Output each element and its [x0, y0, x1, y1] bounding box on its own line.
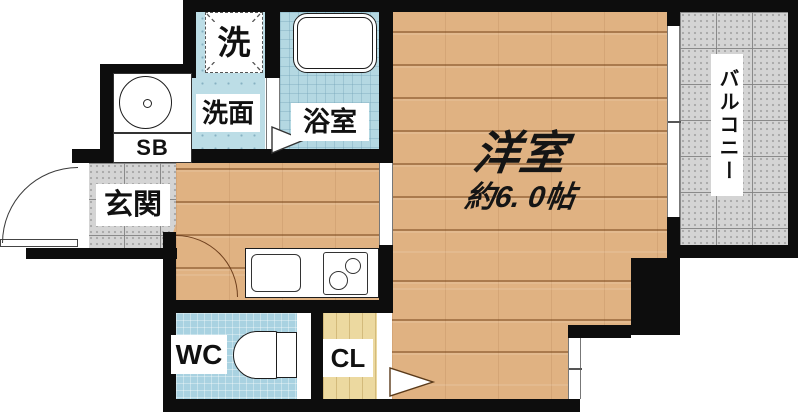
wall-bath-left [265, 12, 280, 78]
lower-window [568, 338, 581, 399]
stove-burner-large-icon [329, 271, 348, 290]
wall-bath-right [379, 12, 393, 163]
wall-balcony-right [788, 0, 798, 258]
entrance-label: 玄関 [96, 184, 170, 226]
wall-kitchen-left [163, 232, 176, 412]
wall-step-horiz [568, 325, 631, 338]
laundry-label: 洗 [213, 22, 255, 62]
stove-burner-small-icon [345, 258, 361, 274]
balcony-window [667, 26, 680, 217]
main-room-size-label: 約6. 0帖 [422, 180, 617, 216]
washroom-label: 洗面 [196, 94, 260, 132]
wall-step-block [631, 258, 680, 335]
shoe-box: SB [113, 133, 192, 163]
toilet-door-gap [297, 313, 311, 399]
wall-mid-right [379, 245, 393, 313]
main-room-label: 洋室 [451, 126, 589, 180]
entrance-door-swing-arc [2, 167, 78, 243]
wall-window-top-corner [667, 12, 680, 26]
wall-top [183, 0, 798, 12]
kitchen-sink-icon [251, 254, 301, 292]
closet-door-arrow-icon [389, 366, 435, 398]
wall-wc-cl [311, 313, 323, 399]
floor-plan: SB 洗 洗面 浴室 玄関 WC CL 洋室 約6. 0帖 バルコニー [0, 0, 800, 412]
shoe-box-label: SB [136, 137, 169, 159]
wall-entrance-bottom [26, 248, 177, 259]
toilet-label: WC [171, 335, 227, 374]
bathroom-label: 浴室 [291, 103, 369, 141]
bathtub-icon [293, 13, 377, 73]
kitchen-room-opening [379, 163, 393, 245]
wall-balcony-bottom [667, 245, 798, 258]
wall-counter-bottom [163, 300, 393, 313]
vanity-drain-icon [143, 99, 152, 108]
wall-window-bottom-seg [667, 217, 680, 258]
wall-bottom [163, 399, 580, 412]
toilet-bowl-icon [233, 331, 279, 379]
closet-label: CL [323, 339, 373, 377]
toilet-tank-icon [276, 332, 297, 378]
balcony-label: バルコニー [711, 54, 743, 196]
